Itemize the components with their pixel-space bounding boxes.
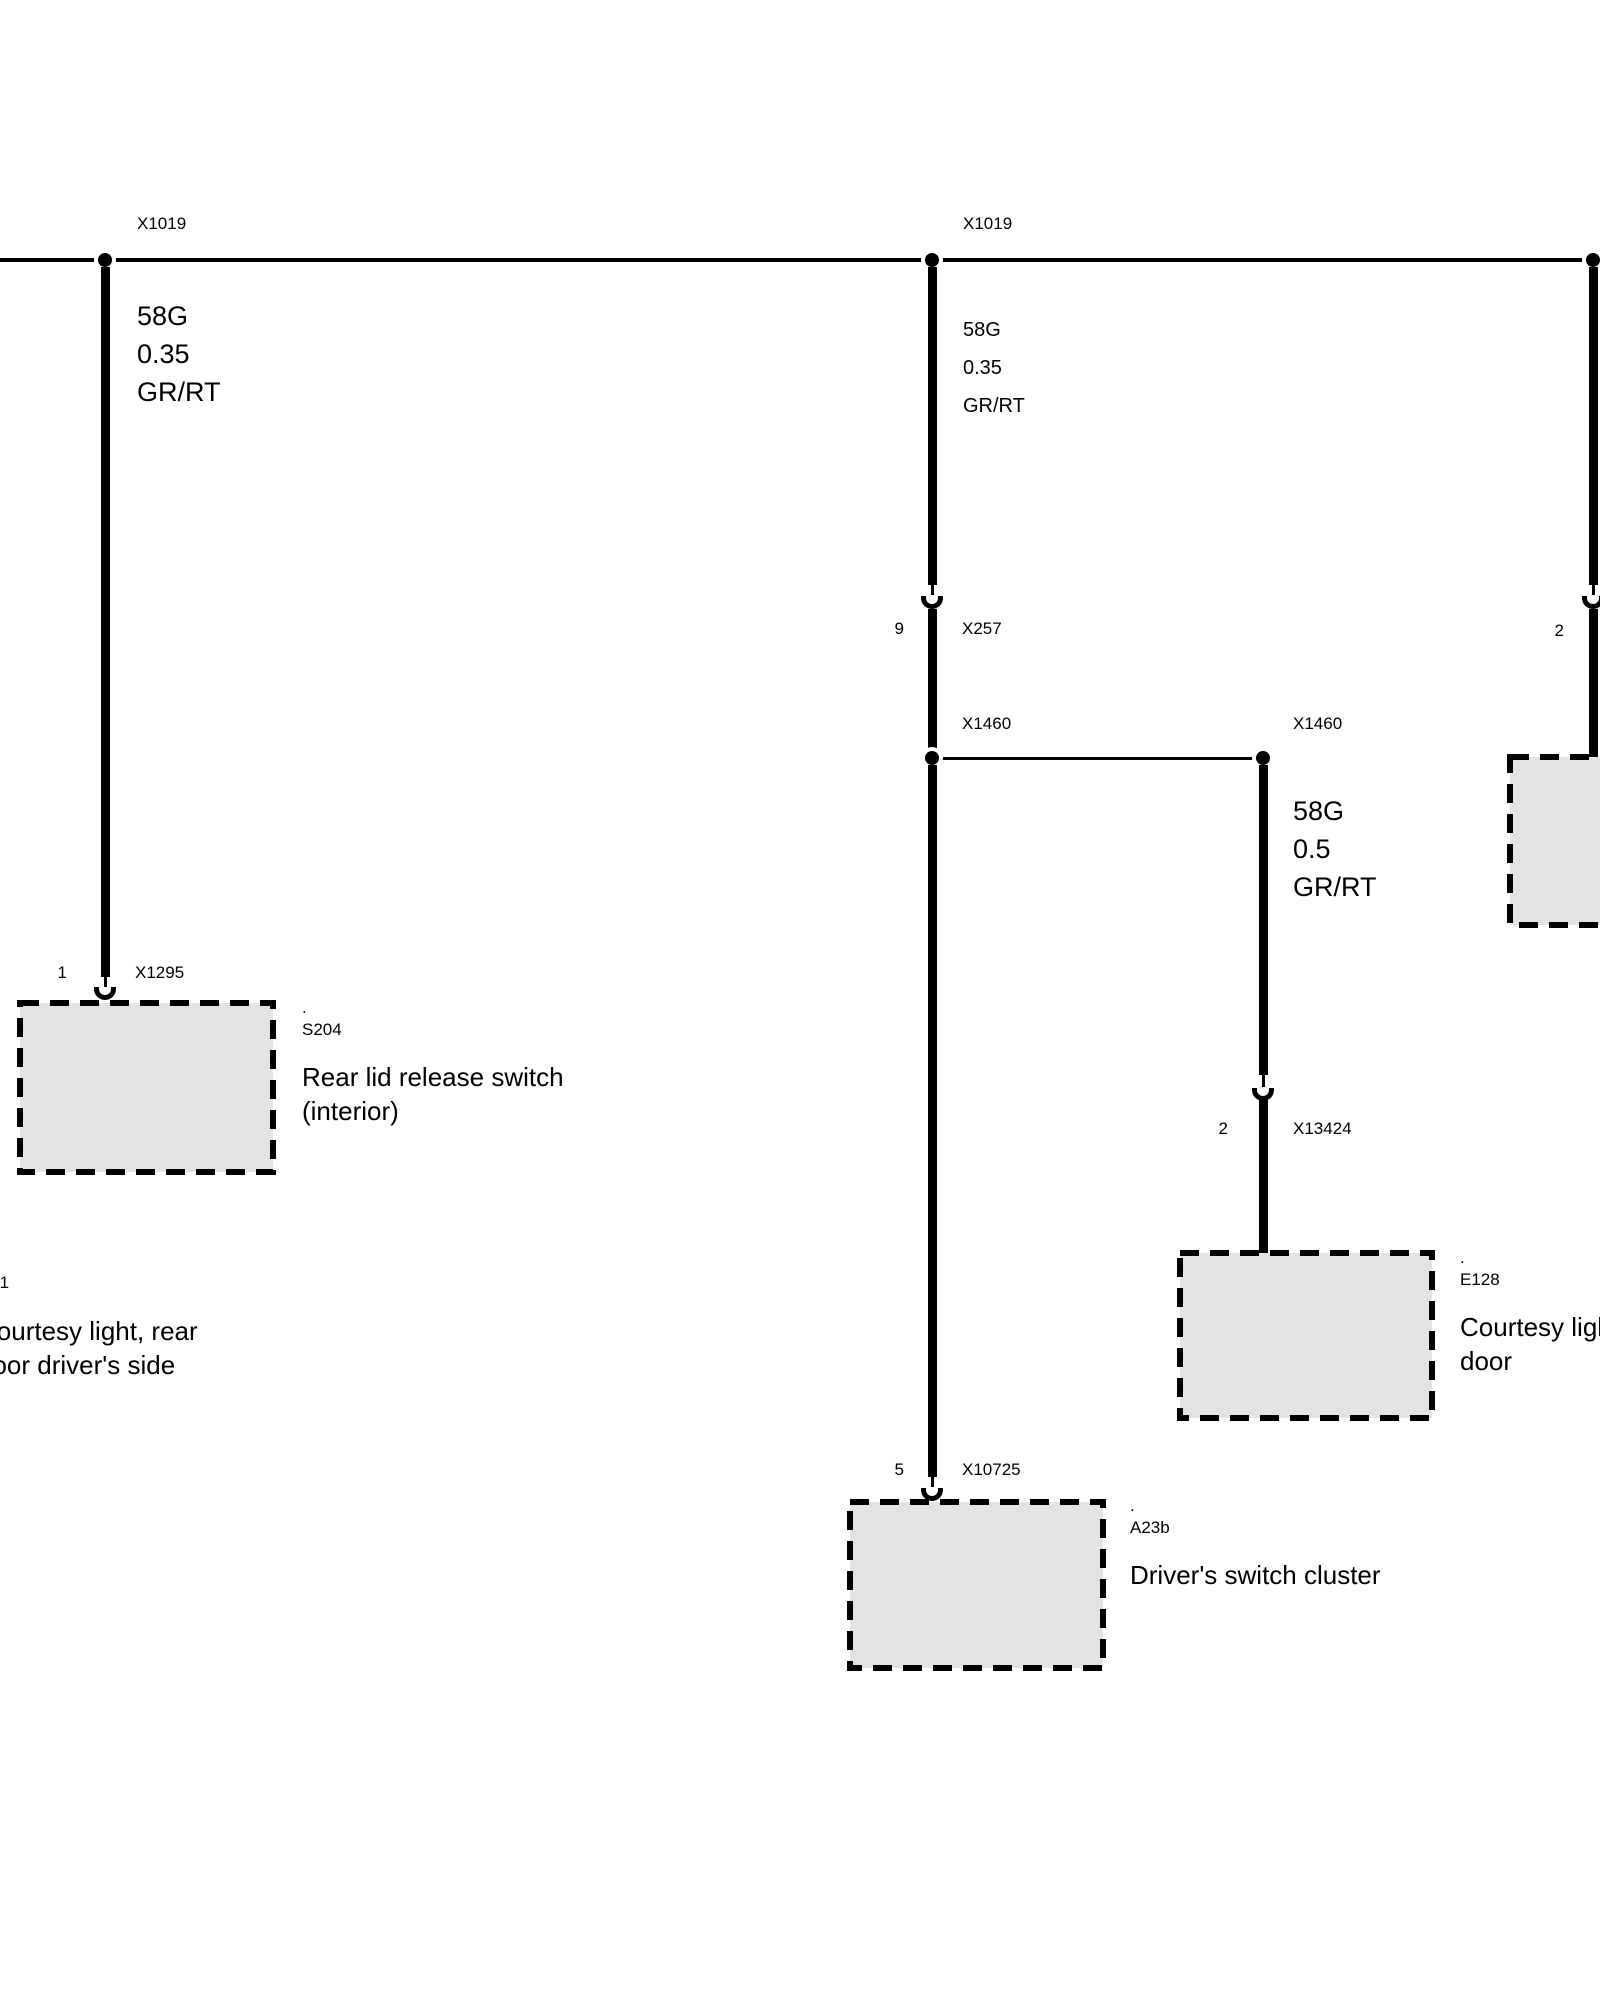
left-offscreen-name: Courtesy light, rear door driver's side bbox=[0, 1314, 198, 1382]
wire-circuit: 58G bbox=[1293, 792, 1377, 830]
connector-label-x10725: X10725 bbox=[962, 1460, 1021, 1480]
e128-dot: . bbox=[1460, 1248, 1465, 1268]
wire-middle-lower bbox=[928, 765, 937, 1477]
connector-symbol-right-edge bbox=[1582, 596, 1600, 609]
wire-circuit: 58G bbox=[137, 297, 221, 335]
wire-door-stub bbox=[1262, 1075, 1265, 1087]
connector-symbol-x257 bbox=[921, 596, 943, 609]
wire-middle-stub-x10725 bbox=[931, 1477, 934, 1487]
left-offscreen-code-fragment: -1 bbox=[0, 1273, 9, 1293]
connector-label-x1460-right: X1460 bbox=[1293, 714, 1342, 734]
connector-symbol-x1295 bbox=[94, 987, 116, 1000]
wire-middle-mid bbox=[928, 609, 937, 754]
wire-spec-left: 58G 0.35 GR/RT bbox=[137, 297, 221, 411]
wire-cross-section: 0.5 bbox=[1293, 830, 1377, 868]
wire-cross-section: 0.35 bbox=[963, 349, 1025, 387]
a23b-dot: . bbox=[1130, 1496, 1135, 1516]
connector-label-x1019-mid: X1019 bbox=[963, 214, 1012, 234]
wire-color-code: GR/RT bbox=[963, 387, 1025, 425]
wire-door-upper bbox=[1259, 765, 1268, 1075]
e128-box bbox=[1177, 1250, 1435, 1421]
junction-dot-x1460-left bbox=[925, 751, 939, 765]
wire-spec-door: 58G 0.5 GR/RT bbox=[1293, 792, 1377, 906]
wire-middle-upper bbox=[928, 267, 937, 585]
a23b-name: Driver's switch cluster bbox=[1130, 1558, 1381, 1592]
pin-label-x10725: 5 bbox=[852, 1460, 904, 1480]
wire-color-code: GR/RT bbox=[1293, 868, 1377, 906]
wire-circuit: 58G bbox=[963, 311, 1025, 349]
connector-label-x13424: X13424 bbox=[1293, 1119, 1352, 1139]
wire-middle-stub-x257 bbox=[931, 585, 934, 595]
e128-code: E128 bbox=[1460, 1270, 1500, 1290]
wire-right-stub bbox=[1592, 585, 1595, 595]
a23b-code: A23b bbox=[1130, 1518, 1170, 1538]
s204-dot: . bbox=[302, 998, 307, 1018]
pin-label-right-edge: 2 bbox=[1512, 621, 1564, 641]
s204-name: Rear lid release switch (interior) bbox=[302, 1060, 564, 1128]
pin-label-x13424: 2 bbox=[1176, 1119, 1228, 1139]
wire-color-code: GR/RT bbox=[137, 373, 221, 411]
junction-dot-x1019-mid bbox=[925, 253, 939, 267]
e128-name: Courtesy light, door bbox=[1460, 1310, 1600, 1378]
pin-label-x1295: 1 bbox=[15, 963, 67, 983]
connector-label-x257: X257 bbox=[962, 619, 1002, 639]
s204-box bbox=[17, 1000, 276, 1175]
junction-dot-x1460-right bbox=[1256, 751, 1270, 765]
wire-door-lower bbox=[1259, 1100, 1268, 1253]
wire-cross-section: 0.35 bbox=[137, 335, 221, 373]
connector-label-x1295: X1295 bbox=[135, 963, 184, 983]
junction-dot-x1019-right bbox=[1586, 253, 1600, 267]
top-bus-wire bbox=[0, 258, 1600, 262]
s204-code: S204 bbox=[302, 1020, 342, 1040]
connector-label-x1460-left: X1460 bbox=[962, 714, 1011, 734]
wire-x1460-link bbox=[932, 757, 1263, 760]
wire-left-vertical bbox=[101, 267, 110, 977]
wiring-diagram: X1019 X1019 58G 0.35 GR/RT 1 X1295 . S20… bbox=[0, 0, 1600, 2000]
junction-dot-x1019-left bbox=[98, 253, 112, 267]
wire-right-upper bbox=[1589, 267, 1598, 585]
right-edge-box bbox=[1507, 754, 1600, 928]
wire-spec-middle: 58G 0.35 GR/RT bbox=[963, 311, 1025, 425]
pin-label-x257: 9 bbox=[852, 619, 904, 639]
a23b-box bbox=[847, 1499, 1106, 1671]
wire-right-lower bbox=[1589, 609, 1598, 757]
connector-label-x1019-left: X1019 bbox=[137, 214, 186, 234]
